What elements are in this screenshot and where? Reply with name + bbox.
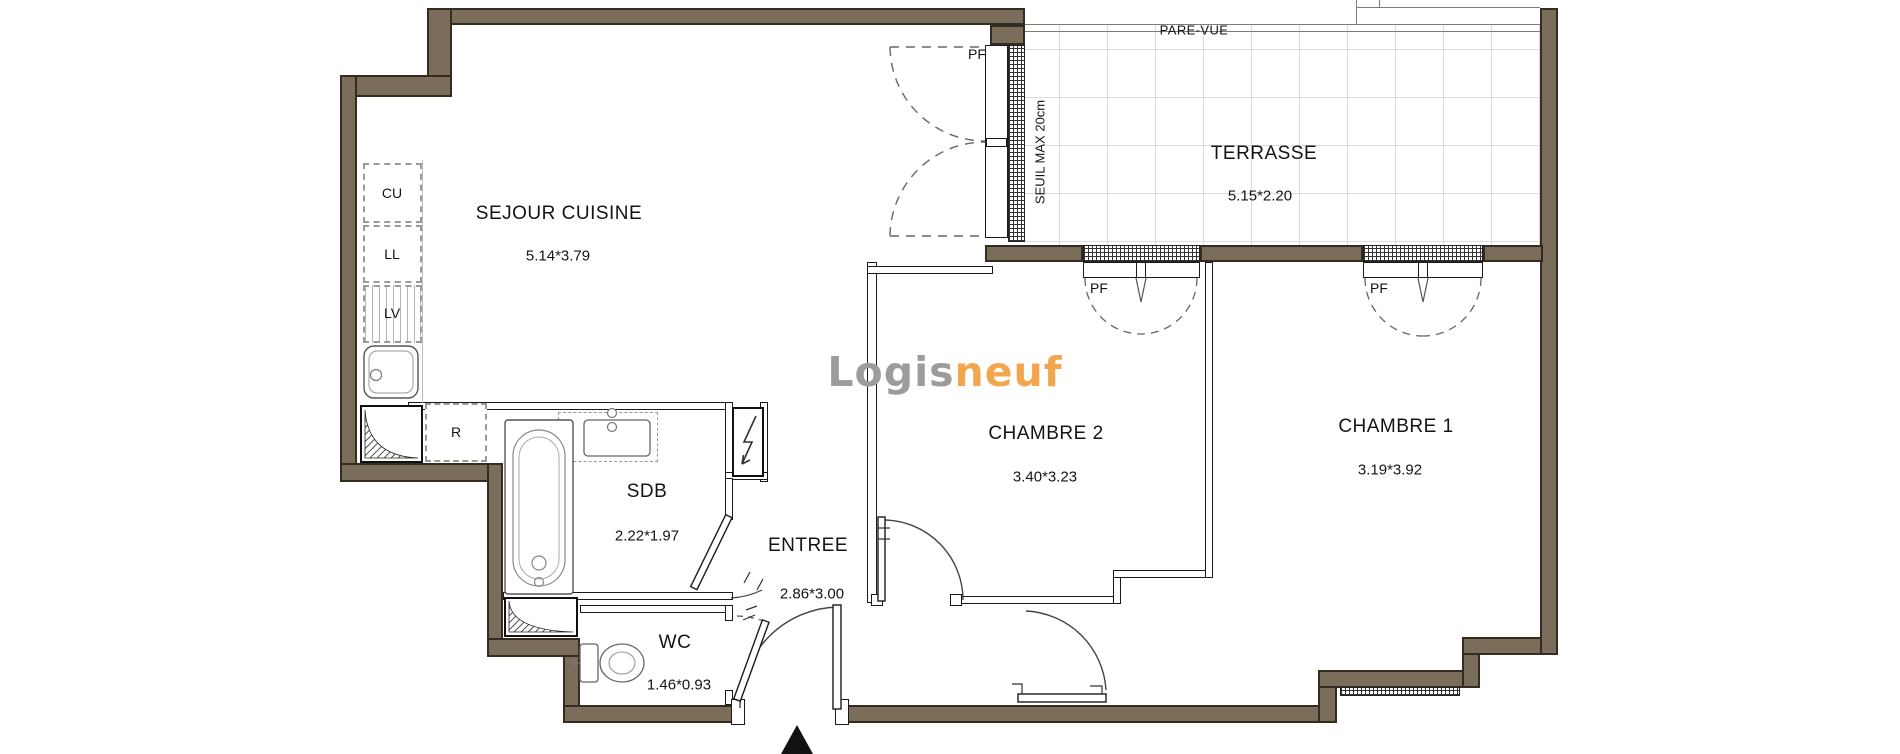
radiator-icon-2 xyxy=(505,598,577,636)
appliance-label-r: R xyxy=(451,424,461,440)
room-label-chambre1: CHAMBRE 1 xyxy=(1338,416,1453,438)
french-door-sejour xyxy=(890,47,985,236)
logisneuf-logo: Logisneuf xyxy=(827,348,1062,396)
chambre2-door xyxy=(878,517,963,601)
wc-door xyxy=(734,606,769,701)
room-dims-chambre1: 3.19*3.92 xyxy=(1358,462,1422,479)
sink-icon xyxy=(364,346,418,398)
room-dims-chambre2: 3.40*3.23 xyxy=(1013,469,1077,486)
floor-plan: SEJOUR CUISINE 5.14*3.79 TERRASSE 5.15*2… xyxy=(0,0,1900,754)
room-label-sejour: SEJOUR CUISINE xyxy=(476,203,642,225)
room-label-chambre2: CHAMBRE 2 xyxy=(988,423,1103,445)
logo-part-orange: neuf xyxy=(955,348,1063,396)
room-label-entree: ENTREE xyxy=(768,535,848,557)
casement-center-mark-chambre1 xyxy=(1418,278,1428,302)
north-arrow-icon xyxy=(781,725,813,754)
washbasin-icon xyxy=(584,409,650,457)
appliance-label-ll: LL xyxy=(384,246,400,262)
room-dims-sdb: 2.22*1.97 xyxy=(615,528,679,545)
seuil-label: SEUIL MAX 20cm xyxy=(1033,100,1048,204)
pf-label-chambre2: PF xyxy=(1090,280,1108,296)
room-dims-terrasse: 5.15*2.20 xyxy=(1228,188,1292,205)
bathtub-icon xyxy=(505,420,573,594)
radiator-icon xyxy=(361,406,422,462)
room-label-terrasse: TERRASSE xyxy=(1211,143,1317,165)
toilet-icon xyxy=(570,644,644,682)
room-label-wc: WC xyxy=(659,632,692,654)
room-dims-sejour: 5.14*3.79 xyxy=(526,248,590,265)
room-dims-wc: 1.46*0.93 xyxy=(647,677,711,694)
logo-part-gray: Logis xyxy=(827,348,954,396)
appliance-label-cu: CU xyxy=(382,185,402,201)
pf-label-chambre1: PF xyxy=(1370,280,1388,296)
room-label-sdb: SDB xyxy=(627,481,668,503)
appliance-label-lv: LV xyxy=(384,305,400,321)
electrical-panel xyxy=(733,408,763,476)
chambre1-door xyxy=(1012,611,1106,702)
pf-label-terrace-door: PF xyxy=(968,46,986,62)
casement-center-mark-chambre2 xyxy=(1136,278,1146,302)
room-dims-entree: 2.86*3.00 xyxy=(780,586,844,603)
pare-vue-label: PARE-VUE xyxy=(1160,23,1229,38)
sdb-door xyxy=(691,515,763,598)
